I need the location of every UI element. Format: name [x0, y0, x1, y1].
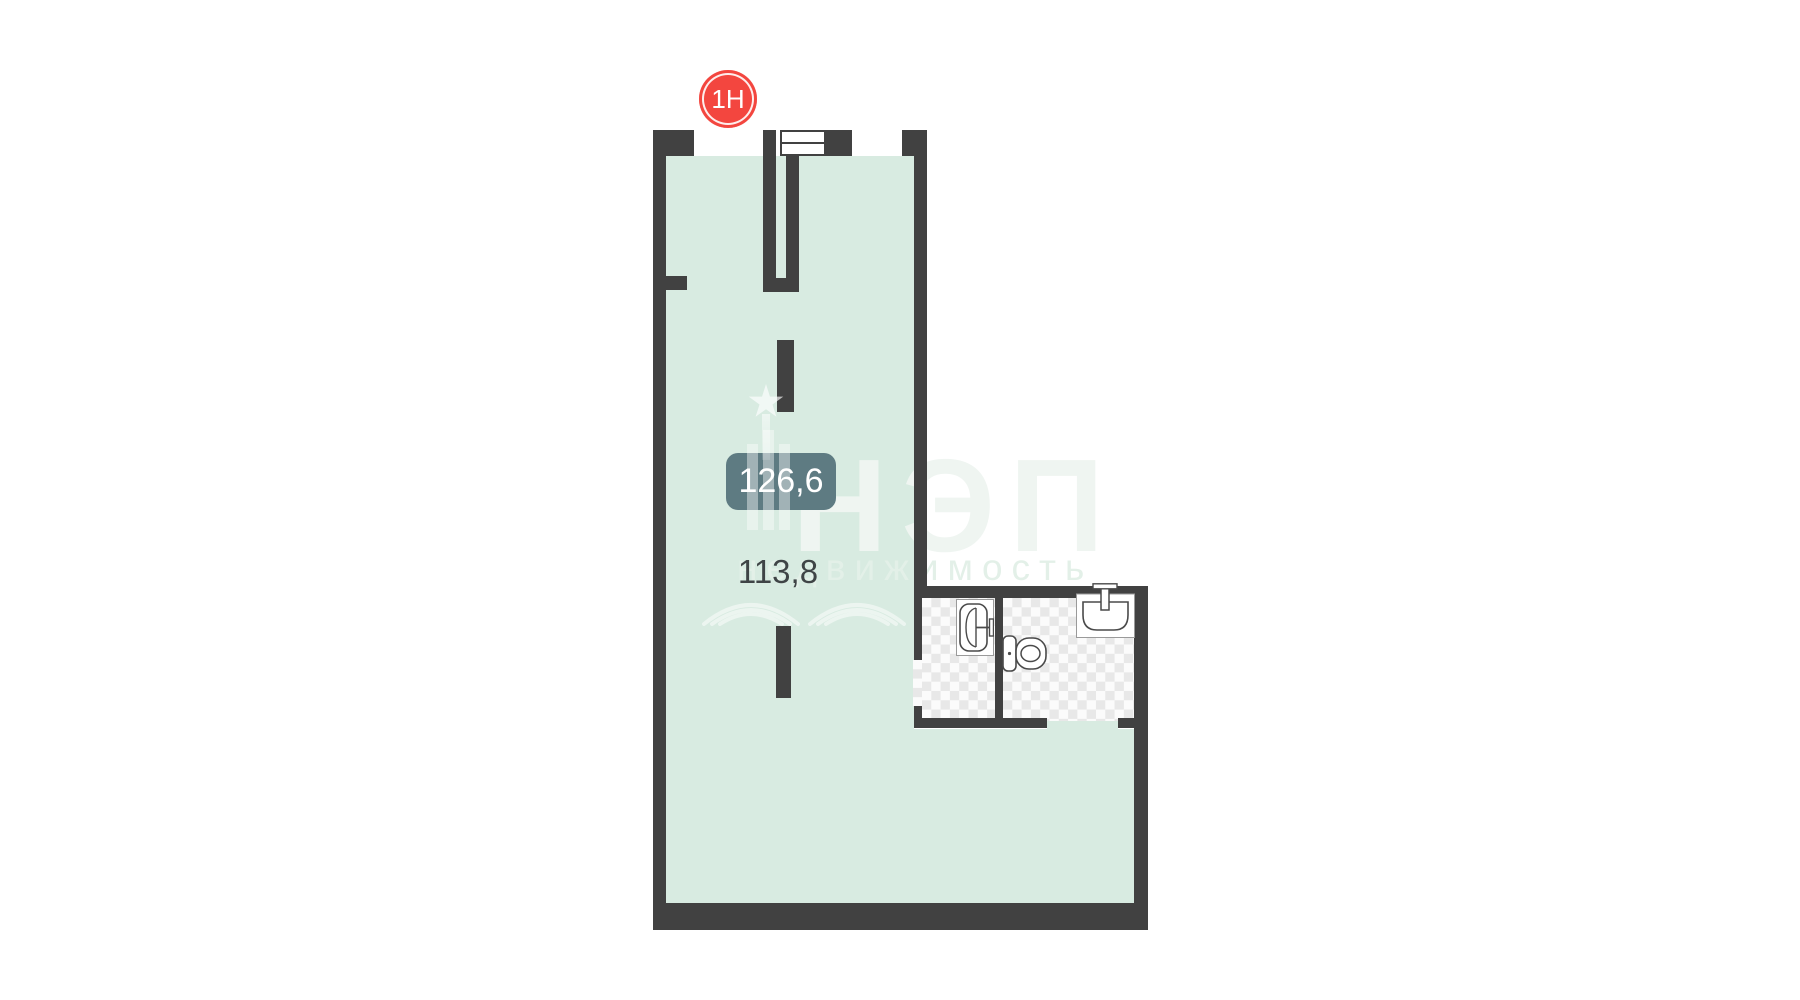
wall-stub-upper: [777, 340, 794, 412]
unit-badge[interactable]: 1Н: [699, 70, 757, 128]
wall-left: [653, 130, 666, 930]
wall-top-mid-block: [825, 130, 852, 156]
wall-left-stub: [666, 276, 687, 290]
secondary-area-label: 113,8: [708, 553, 848, 591]
wall-bathroom-left-upper: [914, 598, 922, 660]
wall-bathroom-bottom-right: [1118, 718, 1134, 728]
main-room-fill-lower: [914, 729, 1134, 903]
wall-shaft-inner: [786, 156, 799, 292]
area-badge[interactable]: 126,6: [726, 453, 836, 510]
floor-plan-viewer: НЭП недвижимость: [0, 0, 1800, 1000]
area-badge-value: 126,6: [726, 453, 836, 510]
wall-right-lower: [1134, 586, 1148, 930]
toilet-icon: [1002, 634, 1047, 673]
bathtub-icon: [956, 599, 994, 656]
wall-shaft-left: [763, 130, 776, 280]
wall-bottom: [653, 903, 1148, 930]
window-pane-line: [782, 142, 824, 144]
sink-icon: [1076, 583, 1135, 638]
wall-top-left-block: [653, 130, 694, 156]
wall-shaft-bottom: [763, 278, 799, 292]
bathroom-left-door-gap: [913, 660, 922, 706]
wall-stub-lower: [776, 626, 791, 698]
window-symbol: [780, 130, 826, 156]
wall-top-right-block: [902, 130, 927, 156]
wall-right-upper: [914, 156, 927, 598]
wall-bathroom-bottom-left: [914, 718, 1047, 728]
unit-badge-label: 1Н: [711, 84, 744, 115]
